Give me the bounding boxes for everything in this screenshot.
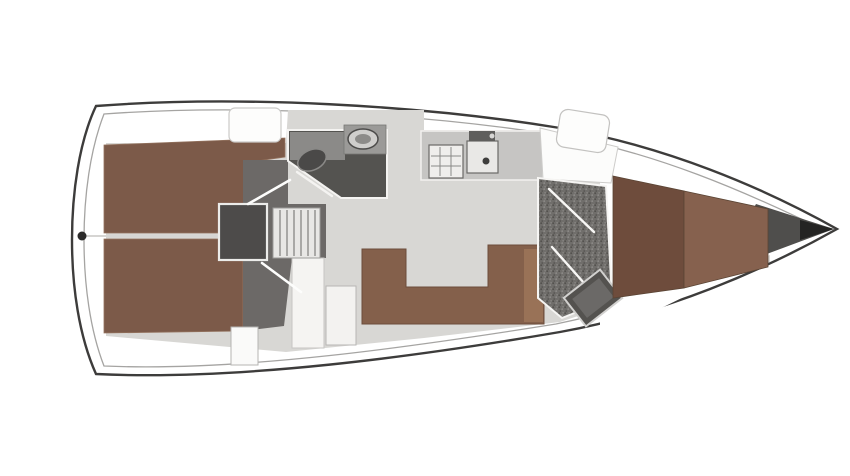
floor-plan-canvas — [0, 0, 850, 476]
salon-table — [326, 286, 356, 345]
vberth-mattress-left — [613, 176, 684, 298]
deck-hatch-mid — [555, 108, 610, 153]
lower-cabinet — [292, 258, 324, 348]
transom-fitting — [78, 232, 87, 241]
galley-sink-drain — [483, 158, 490, 165]
galley-faucet-knob — [490, 134, 495, 139]
sailboat-floor-plan — [0, 0, 850, 476]
galley-sink — [467, 141, 498, 173]
galley-stove — [429, 145, 463, 178]
nav-seat — [231, 327, 258, 365]
engine-box — [219, 204, 267, 260]
shapes-layer — [72, 102, 837, 376]
aft-head-sink-bowl — [355, 134, 371, 144]
deck-hatch-aft — [229, 108, 281, 142]
